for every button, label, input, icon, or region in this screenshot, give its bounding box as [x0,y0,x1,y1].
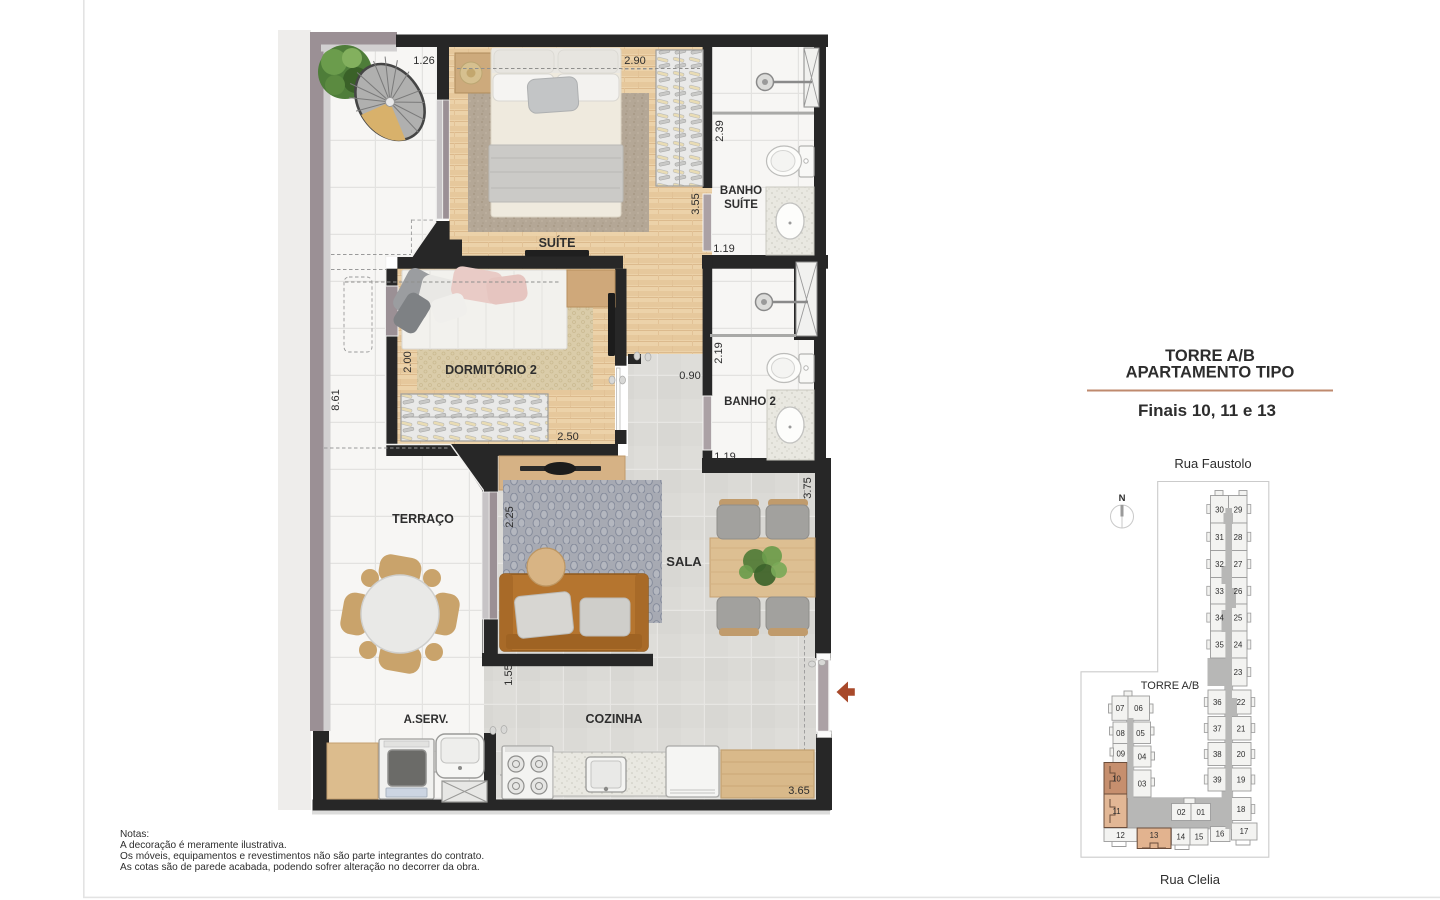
svg-text:TORRE A/B: TORRE A/B [1141,680,1199,692]
svg-text:17: 17 [1240,827,1249,836]
svg-text:21: 21 [1237,724,1246,733]
svg-text:07: 07 [1116,704,1125,713]
svg-text:20: 20 [1237,750,1246,759]
svg-text:34: 34 [1215,614,1224,623]
svg-text:28: 28 [1234,533,1243,542]
svg-text:N: N [1119,493,1126,504]
svg-text:2.39: 2.39 [714,120,726,141]
svg-text:COZINHA: COZINHA [586,712,643,726]
svg-text:32: 32 [1215,560,1224,569]
svg-text:1.55: 1.55 [503,664,515,685]
svg-text:SUÍTE: SUÍTE [724,198,758,211]
svg-text:A decoração é meramente ilustr: A decoração é meramente ilustrativa. [120,840,287,851]
svg-text:26: 26 [1234,587,1243,596]
svg-text:16: 16 [1216,830,1225,839]
svg-text:30: 30 [1215,506,1224,515]
svg-text:8.61: 8.61 [330,389,342,410]
svg-text:36: 36 [1213,698,1222,707]
svg-text:04: 04 [1138,753,1147,762]
svg-text:3.75: 3.75 [802,477,814,498]
svg-text:SUÍTE: SUÍTE [539,235,576,250]
svg-text:35: 35 [1215,641,1224,650]
svg-text:2.90: 2.90 [624,55,645,67]
svg-text:1.26: 1.26 [413,55,434,67]
svg-text:DORMITÓRIO 2: DORMITÓRIO 2 [445,362,537,377]
svg-text:05: 05 [1136,729,1145,738]
svg-text:Rua Clelia: Rua Clelia [1160,872,1221,887]
svg-text:22: 22 [1237,698,1246,707]
svg-text:Finais 10, 11 e 13: Finais 10, 11 e 13 [1138,401,1276,420]
svg-text:38: 38 [1213,750,1222,759]
svg-text:14: 14 [1176,833,1185,842]
svg-text:09: 09 [1116,750,1125,759]
svg-text:2.50: 2.50 [557,431,578,443]
svg-text:02: 02 [1177,808,1186,817]
svg-text:27: 27 [1234,560,1243,569]
svg-text:TERRAÇO: TERRAÇO [392,512,454,526]
svg-text:0.90: 0.90 [679,370,700,382]
svg-text:3.55: 3.55 [690,193,702,214]
svg-text:1.19: 1.19 [714,451,735,463]
svg-text:18: 18 [1237,805,1246,814]
svg-text:06: 06 [1134,704,1143,713]
svg-text:2.25: 2.25 [504,506,516,527]
svg-text:29: 29 [1234,506,1243,515]
svg-text:3.65: 3.65 [788,785,809,797]
svg-text:APARTAMENTO TIPO: APARTAMENTO TIPO [1126,364,1295,382]
svg-text:33: 33 [1215,587,1224,596]
svg-text:A.SERV.: A.SERV. [404,714,449,726]
svg-text:2.19: 2.19 [713,342,725,363]
svg-text:25: 25 [1234,614,1243,623]
svg-text:As cotas são de parede acabada: As cotas são de parede acabada, podendo … [120,862,480,873]
svg-text:1.19: 1.19 [713,243,734,255]
svg-text:37: 37 [1213,724,1222,733]
svg-text:Os móveis, equipamentos e reve: Os móveis, equipamentos e revestimentos … [120,851,484,862]
svg-text:Rua Faustolo: Rua Faustolo [1174,456,1251,471]
svg-text:19: 19 [1237,776,1246,785]
svg-text:SALA: SALA [666,554,702,569]
svg-text:39: 39 [1213,776,1222,785]
svg-text:01: 01 [1196,808,1205,817]
svg-text:08: 08 [1116,729,1125,738]
svg-text:15: 15 [1195,833,1204,842]
svg-text:TORRE A/B: TORRE A/B [1165,347,1255,365]
svg-text:03: 03 [1138,780,1147,789]
svg-text:BANHO: BANHO [720,185,762,197]
svg-text:11: 11 [1112,807,1120,816]
svg-text:Notas:: Notas: [120,829,149,840]
svg-text:BANHO 2: BANHO 2 [724,396,776,408]
svg-text:12: 12 [1116,831,1125,840]
svg-text:31: 31 [1215,533,1224,542]
svg-text:24: 24 [1234,641,1243,650]
svg-text:10: 10 [1112,775,1121,784]
svg-text:23: 23 [1234,668,1243,677]
svg-text:2.00: 2.00 [402,351,414,372]
svg-text:13: 13 [1150,831,1159,840]
